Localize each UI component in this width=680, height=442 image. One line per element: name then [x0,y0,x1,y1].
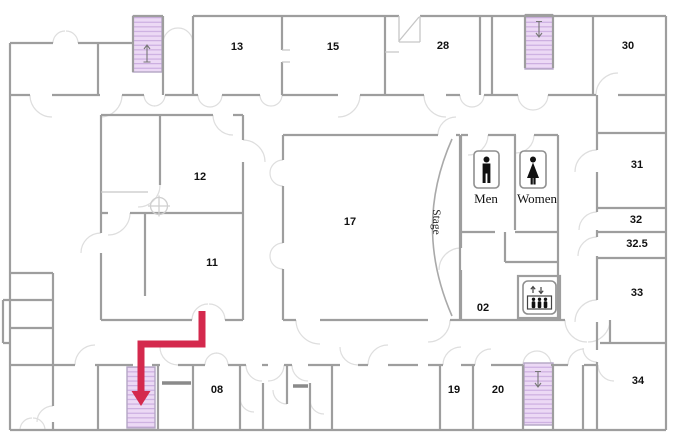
room-label-12: 12 [194,171,206,183]
women-restroom-icon [520,151,546,188]
stairs-top-left [133,16,162,72]
women-label: Women [517,191,557,207]
room-label-30: 30 [622,40,634,52]
room-label-15: 15 [327,41,339,53]
room-label-11: 11 [206,257,218,269]
room-label-33: 33 [631,287,643,299]
stairs-bottom-right [524,363,553,425]
men-restroom-icon [474,151,499,188]
room-label-28: 28 [437,40,449,52]
stairs-top-right [525,15,553,69]
room-label-32: 32 [630,214,642,226]
stage-label: Stage [430,209,442,235]
room-label-08: 08 [211,384,223,396]
room-label-13: 13 [231,41,243,53]
room-label-19: 19 [448,384,460,396]
room-label-17: 17 [344,216,356,228]
floor-plan: 13 15 28 30 12 17 31 32 32.5 33 11 02 08… [0,0,680,442]
walls [3,15,666,430]
floor-plan-svg [0,0,680,442]
route-arrow [132,311,203,406]
room-label-20: 20 [492,384,504,396]
room-label-31: 31 [631,159,643,171]
room-label-02: 02 [477,302,489,314]
room-label-34: 34 [632,375,644,387]
room-label-32-5: 32.5 [626,238,647,250]
elevator-icon [523,281,556,314]
men-label: Men [474,191,498,207]
